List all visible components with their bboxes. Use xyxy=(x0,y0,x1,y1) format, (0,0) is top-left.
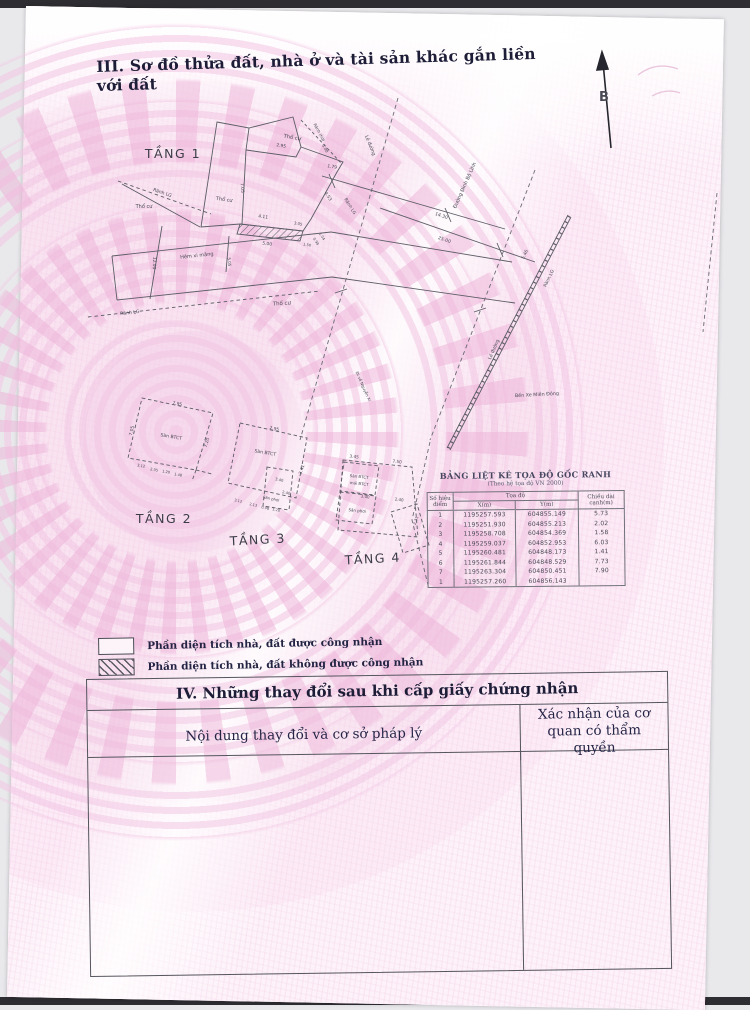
change-content-cell xyxy=(88,752,523,976)
slab-label: Sàn BTCT xyxy=(254,447,277,458)
coord-x: 1195257.260 xyxy=(454,577,517,588)
curb-label: Lề đường xyxy=(363,134,378,157)
roof-label: mái BTCT xyxy=(349,480,369,487)
legend-swatch-recognized xyxy=(98,637,134,655)
dim-label: 7.05 xyxy=(128,425,136,436)
alley-tick xyxy=(226,236,229,272)
dim-label: 2.05 xyxy=(150,467,159,472)
coordinate-table-subtitle: (Theo hệ tọa độ VN 2000) xyxy=(427,480,625,488)
dim-label: 5.46 xyxy=(520,249,530,261)
point-id: 3 xyxy=(428,530,454,540)
dim-label: 1.79 xyxy=(327,163,338,171)
land-label: Thổ cư xyxy=(282,132,302,142)
yard-label: Sân phơi xyxy=(348,507,366,514)
dim-label: 0.98 xyxy=(261,505,270,511)
dim-label: 3.12 xyxy=(234,498,243,504)
legend-label-not-recognized: Phần diện tích nhà, đất không được công … xyxy=(147,656,423,673)
north-arrow-shaft xyxy=(603,62,611,148)
dim-label: 3.05 xyxy=(294,220,304,226)
street-name-label: Đường Đinh Bộ Lĩnh xyxy=(451,161,478,209)
boundary-line-2500 xyxy=(380,208,535,262)
col-point-header: Số hiệu điểm xyxy=(427,492,453,511)
coordinate-table: BẢNG LIỆT KÊ TỌA ĐỘ GỐC RANH (Theo hệ tọ… xyxy=(426,469,625,588)
alley-label: Hẻm xi măng xyxy=(180,250,214,260)
ditch-label: Rãnh LG xyxy=(542,268,556,288)
floor1-ranh-ho-dashed xyxy=(301,120,341,163)
dim-label: 5.00 xyxy=(321,143,330,154)
ditch-label: Rãnh (hở) xyxy=(313,122,327,142)
floor4-labels: 3.45 7.50 Sàn BTCT mái BTCT 3.40 2.40 Sâ… xyxy=(348,454,419,526)
floor3-caption: TẦNG 3 xyxy=(228,530,286,549)
edge-length: 5.73 xyxy=(578,509,624,519)
dim-label: 2.95 xyxy=(276,142,287,150)
point-id: 6 xyxy=(428,559,454,569)
edge-length: 1.41 xyxy=(578,547,624,557)
dim-label: 1.20 xyxy=(272,507,281,513)
dim-label: 2.40 xyxy=(394,497,404,503)
edge-length xyxy=(579,576,625,586)
point-id: 7 xyxy=(428,568,454,578)
measure-tick xyxy=(335,289,347,293)
landmark-label: Bến Xe Miền Đông xyxy=(515,389,559,399)
dim-label: 7.95 xyxy=(172,400,183,408)
floor2-tail xyxy=(192,470,212,481)
dim-label: 1.04 xyxy=(318,232,326,242)
floor4-outline xyxy=(338,460,418,537)
dim-label: 7.50 xyxy=(392,459,402,465)
north-label: B xyxy=(599,90,609,105)
dim-label: 3.45 xyxy=(349,454,359,460)
point-id: 1 xyxy=(428,578,454,588)
table-row: 1 1195257.260 604856.143 xyxy=(428,576,625,588)
north-arrow: B xyxy=(597,52,611,148)
dim-label: 1.48 xyxy=(174,472,183,477)
dim-label: 7.05 xyxy=(239,183,246,193)
rail-rungs xyxy=(448,216,569,449)
floor-captions: TẦNG 1 TẦNG 2 TẦNG 3 TẦNG 4 xyxy=(135,145,401,568)
faint-mark xyxy=(638,66,678,75)
dim-label: 3.41 xyxy=(298,464,307,475)
coord-y: 604855.149 xyxy=(516,509,578,520)
floor3-labels: Sàn BTCT 2.95 3.41 3.12 2.13 0.98 1.20 3… xyxy=(234,425,307,513)
coord-y: 604856.143 xyxy=(516,576,578,587)
section-iv-table: IV. Những thay đổi sau khi cấp giấy chứn… xyxy=(86,671,672,977)
dim-label: 12.00 xyxy=(151,257,158,270)
dim-label: 5.05 xyxy=(227,257,233,267)
dim-label: 7.20 xyxy=(203,437,212,448)
dim-label: 2.13 xyxy=(249,502,258,508)
col-length-header: Chiều dài cạnh(m) xyxy=(578,490,625,509)
dim-label: 25.00 xyxy=(437,235,451,245)
slab-label: Sàn BTCT xyxy=(349,473,369,480)
dim-label: 4.53 xyxy=(323,191,333,203)
dim-label: 1.20 xyxy=(162,469,171,474)
alley-and-parcels xyxy=(88,181,515,317)
land-label: Thổ cư xyxy=(135,203,154,210)
dim-label: 2.95 xyxy=(269,425,280,433)
dim-label: 2.31 xyxy=(412,515,420,526)
dim-label: 1.50 xyxy=(303,242,312,247)
edge-length: 6.03 xyxy=(578,538,624,548)
floor3-inner-box xyxy=(263,467,293,510)
land-label: Thổ cư xyxy=(272,299,292,307)
ditch-label: Rãnh LG xyxy=(152,187,173,199)
floor2-caption: TẦNG 2 xyxy=(135,510,192,526)
floor1-upper-right xyxy=(249,117,301,147)
faint-mark xyxy=(652,91,680,96)
dim-label: 3.12 xyxy=(137,463,146,468)
authority-confirm-cell xyxy=(520,750,671,970)
floor4-appendage xyxy=(391,504,429,553)
alley-top-line xyxy=(112,232,331,256)
section-iv-body-row xyxy=(88,750,671,976)
dim-label: 3.40 xyxy=(275,476,285,483)
coord-x: 1195257.593 xyxy=(453,510,516,521)
page-content: III. Sơ đồ thửa đất, nhà ở và tài sản kh… xyxy=(0,0,750,997)
measure-tick xyxy=(497,243,503,257)
road-edge-dashed-right xyxy=(703,193,717,332)
section-iv-header-row: Nội dung thay đổi và cơ sở pháp lý Xác n… xyxy=(87,703,668,758)
legend-label-recognized: Phần diện tích nhà, đất được công nhận xyxy=(147,636,382,652)
yard-label: Sân phơi xyxy=(263,494,280,502)
floor1-caption: TẦNG 1 xyxy=(144,145,201,161)
legend-swatch-not-recognized xyxy=(98,658,134,676)
point-id: 2 xyxy=(427,521,453,531)
alley-left-cap xyxy=(112,256,117,300)
faint-pink-marks xyxy=(638,66,680,96)
measure-tick xyxy=(329,174,335,188)
dim-label: 14.30 xyxy=(434,211,448,221)
floor3-outline xyxy=(228,423,307,498)
point-id: 1 xyxy=(427,511,453,521)
floor2-labels: Sàn BTCT 7.95 7.05 7.20 3.12 2.05 1.20 1… xyxy=(128,400,211,478)
land-label: Thổ cư xyxy=(214,195,233,205)
dim-label: 4.11 xyxy=(258,213,269,220)
alley-bottom-line xyxy=(117,277,332,300)
coordinate-table-title: BẢNG LIỆT KÊ TỌA ĐỘ GỐC RANH xyxy=(426,469,624,481)
north-arrow-head xyxy=(597,52,608,70)
edge-length: 7.90 xyxy=(579,566,625,576)
ditch-label: Rãnh LG xyxy=(120,309,140,317)
dim-label: 0.98 xyxy=(312,237,320,247)
edge-length: 2.02 xyxy=(578,519,624,529)
point-id: 5 xyxy=(428,549,454,559)
parcel-bottom-line xyxy=(332,277,515,303)
slab-label: Sàn BTCT xyxy=(160,431,183,442)
road-labels: Lề đường Đi về Nguyễn Xí Đường Đinh Bộ L… xyxy=(355,134,560,403)
direction-label: Đi về Nguyễn Xí xyxy=(355,371,373,403)
dim-label: 5.00 xyxy=(262,240,273,247)
road-edge-dashed-1 xyxy=(300,98,398,440)
legend: Phần diện tích nhà, đất được công nhận P… xyxy=(98,630,423,678)
floor4-caption: TẦNG 4 xyxy=(343,549,401,568)
dim-label: 3.40 xyxy=(360,494,370,500)
edge-length: 7.73 xyxy=(578,557,624,567)
ranh-lg-dashed-upper xyxy=(118,181,211,214)
rail-line-inner xyxy=(450,217,571,450)
point-id: 4 xyxy=(428,540,454,550)
ditch-label: Rãnh LG xyxy=(342,197,357,216)
edge-length: 1.58 xyxy=(578,528,624,538)
